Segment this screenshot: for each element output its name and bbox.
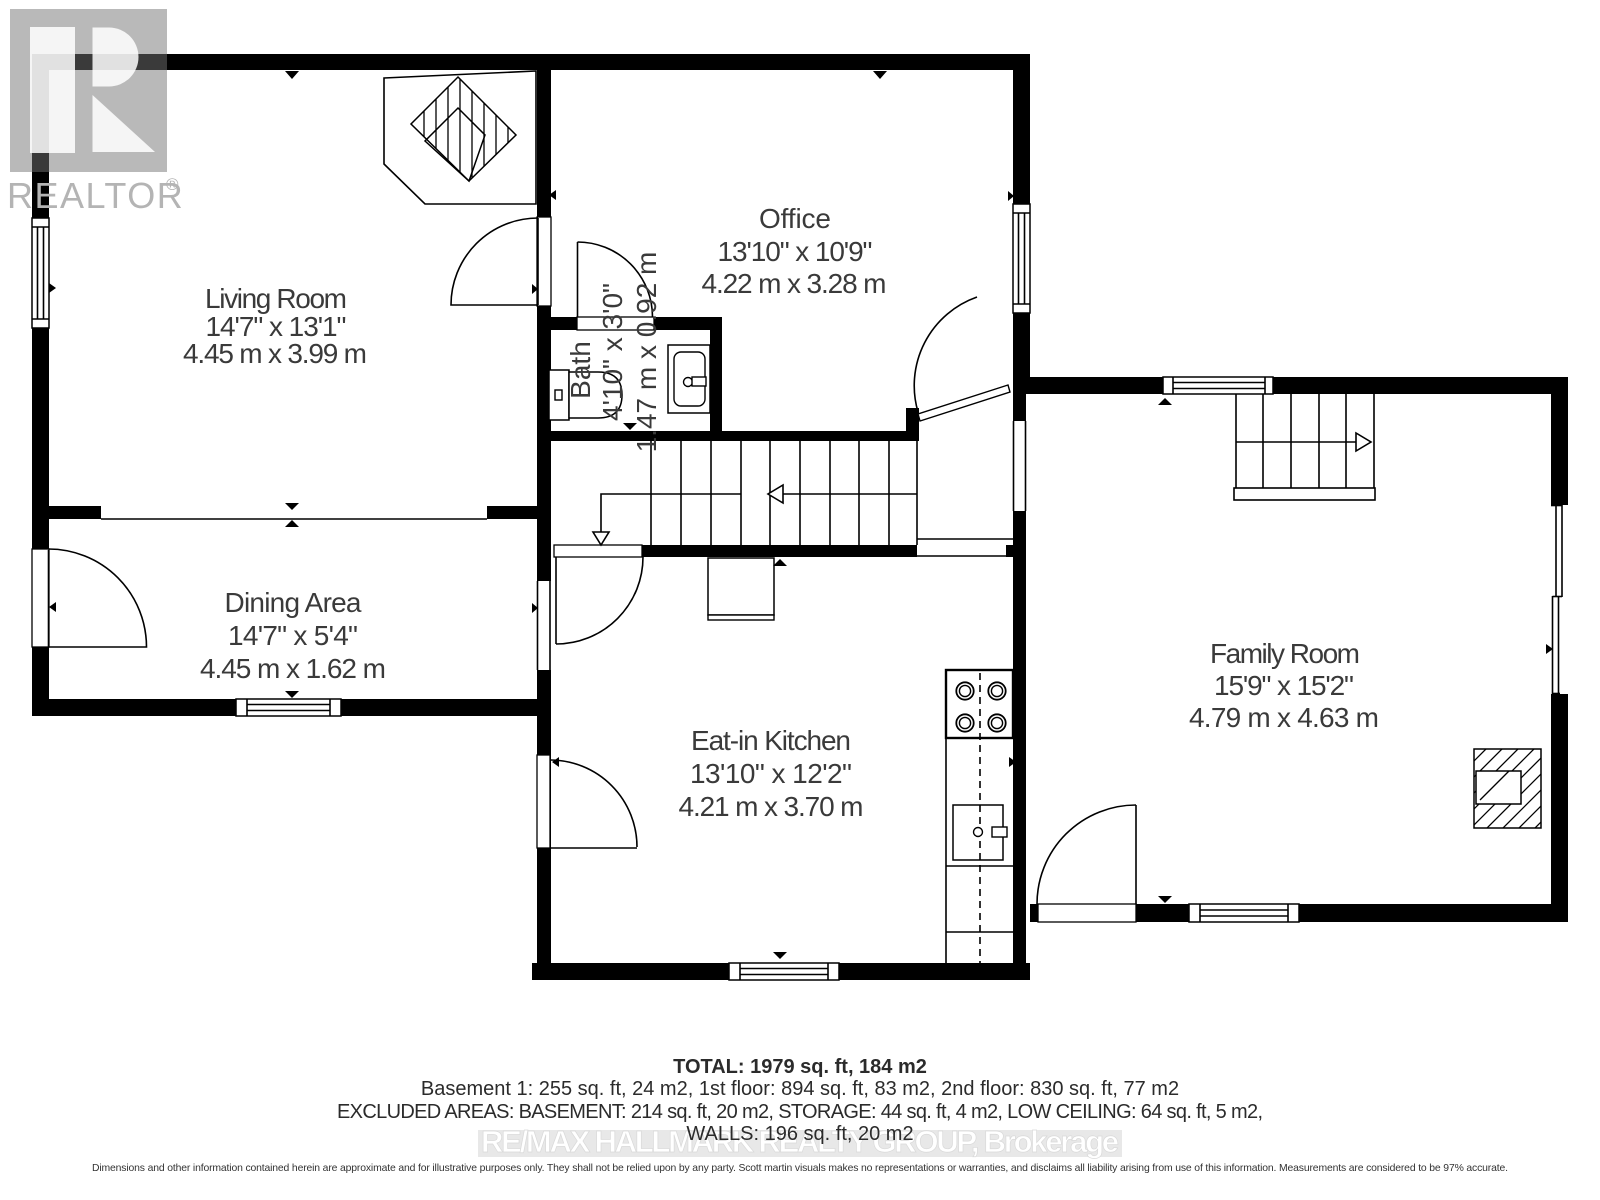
- svg-text:4.79 m x 4.63 m: 4.79 m x 4.63 m: [1189, 702, 1379, 733]
- svg-text:REALTOR: REALTOR: [7, 175, 184, 216]
- svg-text:Bath: Bath: [565, 341, 596, 399]
- svg-text:15'9" x 15'2": 15'9" x 15'2": [1214, 670, 1354, 701]
- svg-text:1.47 m x 0.92 m: 1.47 m x 0.92 m: [631, 252, 662, 453]
- svg-text:4.45 m x 1.62 m: 4.45 m x 1.62 m: [200, 653, 386, 684]
- svg-text:Family Room: Family Room: [1210, 638, 1360, 669]
- svg-text:13'10" x 12'2": 13'10" x 12'2": [690, 758, 852, 789]
- svg-text:14'7" x 5'4": 14'7" x 5'4": [228, 620, 358, 651]
- svg-text:Basement 1: 255 sq. ft, 24 m2,: Basement 1: 255 sq. ft, 24 m2, 1st floor…: [421, 1078, 1179, 1100]
- svg-text:Dimensions and other informati: Dimensions and other information contain…: [92, 1163, 1508, 1174]
- svg-text:®: ®: [166, 175, 179, 194]
- svg-text:Eat-in Kitchen: Eat-in Kitchen: [691, 725, 851, 756]
- svg-text:4.22 m x 3.28 m: 4.22 m x 3.28 m: [702, 268, 887, 299]
- svg-text:Living Room: Living Room: [205, 283, 347, 314]
- svg-text:Office: Office: [759, 203, 831, 234]
- svg-text:TOTAL: 1979 sq. ft, 184 m2: TOTAL: 1979 sq. ft, 184 m2: [673, 1056, 927, 1078]
- svg-text:4.45 m x 3.99 m: 4.45 m x 3.99 m: [183, 338, 367, 369]
- svg-text:4'10" x 3'0": 4'10" x 3'0": [597, 283, 628, 421]
- svg-text:EXCLUDED AREAS: BASEMENT: 214: EXCLUDED AREAS: BASEMENT: 214 sq. ft, 20…: [337, 1101, 1263, 1123]
- svg-text:Dining Area: Dining Area: [225, 587, 362, 618]
- svg-text:WALLS: 196 sq. ft, 20 m2: WALLS: 196 sq. ft, 20 m2: [686, 1123, 913, 1145]
- svg-text:13'10" x 10'9": 13'10" x 10'9": [718, 236, 873, 267]
- svg-text:4.21 m x 3.70 m: 4.21 m x 3.70 m: [679, 791, 864, 822]
